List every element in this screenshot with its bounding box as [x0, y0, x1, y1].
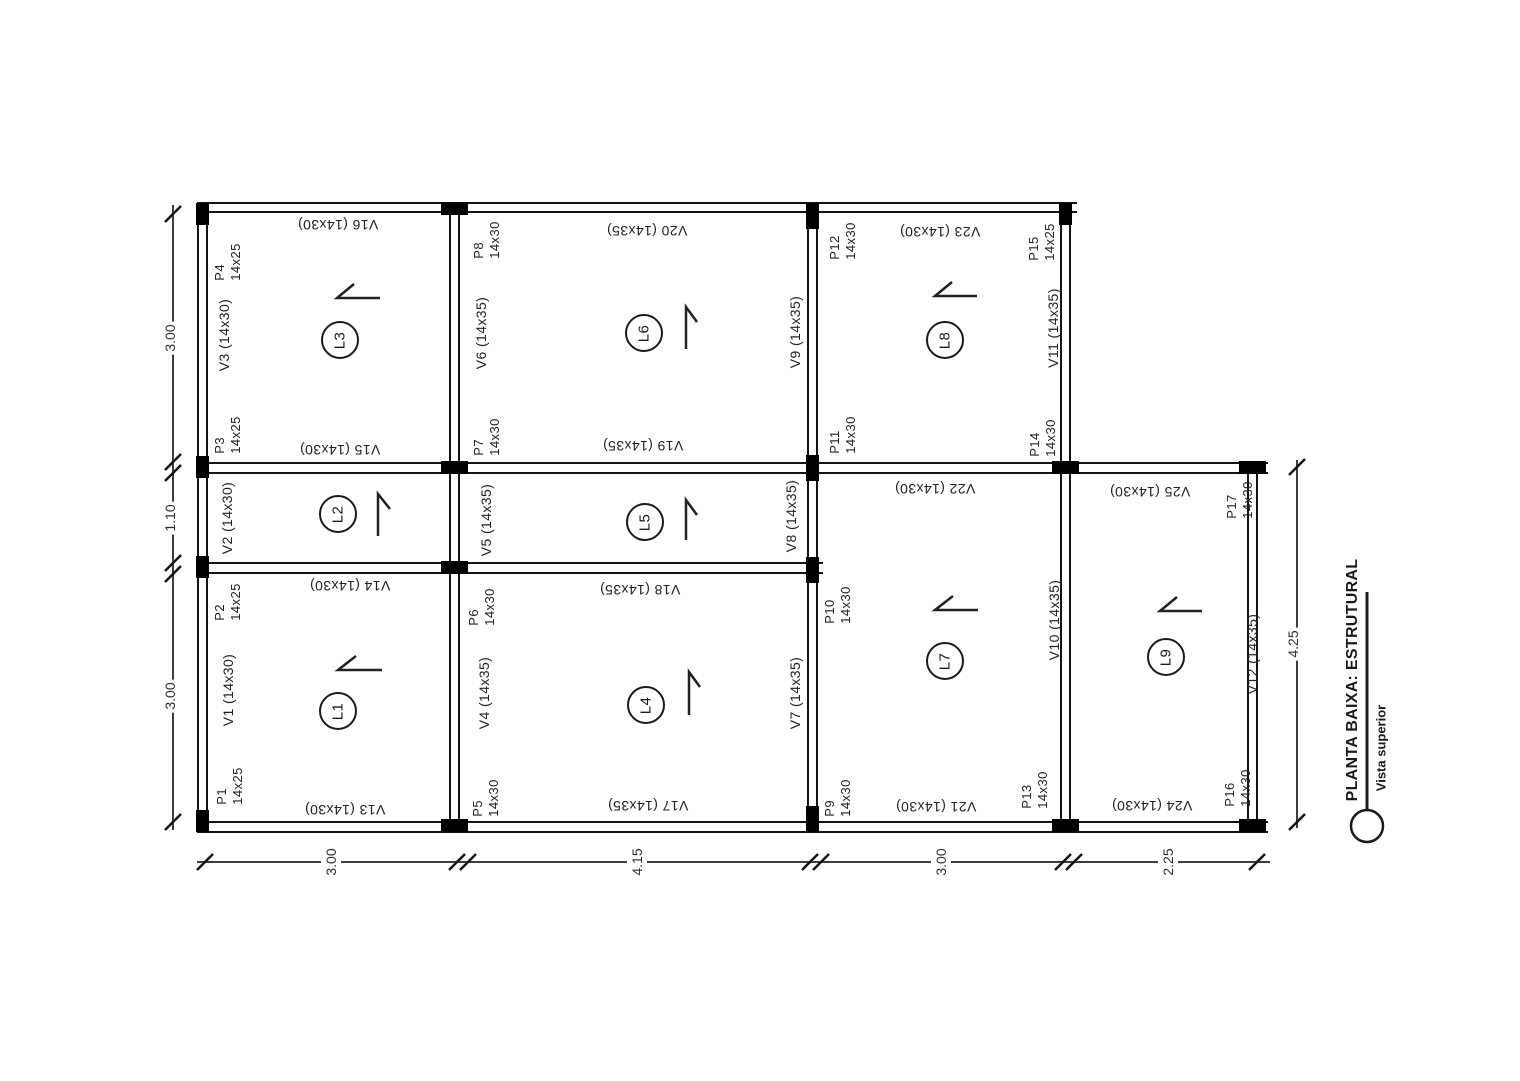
beam-label-v1: V1 (14x30) — [220, 654, 236, 726]
column-label-p2: P214x25 — [212, 583, 245, 620]
beam-label-v13: V13 (14x30) — [305, 802, 386, 818]
beam-label-v11: V11 (14x35) — [1045, 288, 1061, 368]
beam-label-v24: V24 (14x30) — [1112, 798, 1193, 814]
column-p16-rect — [1239, 819, 1266, 832]
beam-label-v9: V9 (14x35) — [787, 296, 803, 368]
column-label-p12: P1214x30 — [827, 222, 860, 259]
beam-label-v4: V4 (14x35) — [476, 657, 492, 729]
column-label-p15: P1514x25 — [1026, 223, 1059, 260]
dim-bottom-3: 3.00 — [931, 845, 951, 878]
beam-label-v20: V20 (14x35) — [607, 223, 688, 239]
dim-right-1: 4.25 — [1283, 627, 1303, 660]
slab-label-l6: L6 — [625, 314, 663, 352]
beam-label-v19: V19 (14x35) — [603, 438, 684, 454]
slab-label-l2: L2 — [319, 495, 357, 533]
slab-label-l8: L8 — [926, 321, 964, 359]
beam-label-v6: V6 (14x35) — [473, 297, 489, 369]
beam-label-v25: V25 (14x30) — [1110, 484, 1191, 500]
structural-floor-plan: V1 (14x30) V2 (14x30) V3 (14x30) V4 (14x… — [0, 0, 1520, 1081]
column-p2-rect — [196, 556, 209, 578]
beam-label-v16: V16 (14x30) — [298, 217, 379, 233]
column-p11-rect — [806, 455, 819, 481]
arrow-l1 — [338, 656, 382, 670]
column-p7-rect — [441, 461, 468, 474]
arrow-l4 — [689, 672, 700, 715]
view-title-circle-icon — [1351, 810, 1383, 842]
slab-label-l9: L9 — [1147, 638, 1185, 676]
column-p5-rect — [441, 819, 468, 832]
column-p10-rect — [806, 557, 819, 583]
column-p8-rect — [441, 202, 468, 215]
column-label-p4: P414x25 — [212, 243, 245, 280]
dim-left-2: 1.10 — [160, 501, 180, 534]
beam-label-v22: V22 (14x30) — [895, 481, 976, 497]
view-subtitle: Vista superior — [1374, 705, 1389, 791]
arrow-l9 — [1160, 597, 1202, 611]
column-label-p16: P1614x30 — [1222, 769, 1255, 806]
view-title: PLANTA BAIXA: ESTRUTURAL — [1344, 559, 1362, 802]
beam-label-v15: V15 (14x30) — [300, 442, 381, 458]
column-label-p13: P1314x30 — [1019, 771, 1052, 808]
dim-left-3: 3.00 — [160, 679, 180, 712]
column-p15-rect — [1059, 203, 1072, 225]
column-p3-rect — [196, 456, 209, 478]
column-p1-rect — [196, 810, 209, 832]
beam-label-v23: V23 (14x30) — [900, 224, 981, 240]
dim-bottom-1: 3.00 — [321, 845, 341, 878]
beam-label-v10: V10 (14x35) — [1046, 580, 1062, 661]
dim-bottom-2: 4.15 — [627, 845, 647, 878]
beam-label-v7: V7 (14x35) — [787, 657, 803, 729]
arrow-l3 — [337, 284, 380, 298]
column-label-p9: P914x30 — [822, 779, 855, 816]
arrow-l7 — [935, 596, 978, 610]
beam-label-v17: V17 (14x35) — [608, 798, 689, 814]
column-label-p5: P514x30 — [470, 779, 503, 816]
beam-label-v8: V8 (14x35) — [783, 480, 799, 552]
dimension-lines — [173, 205, 1297, 862]
slab-label-l1: L1 — [319, 692, 357, 730]
column-label-p17: P1714x30 — [1224, 481, 1257, 518]
column-label-p3: P314x25 — [212, 416, 245, 453]
column-label-p10: P1014x30 — [822, 586, 855, 623]
beam-label-v12: V12 (14x35) — [1244, 614, 1260, 695]
dim-left-1: 3.00 — [160, 321, 180, 354]
slab-label-l7: L7 — [926, 642, 964, 680]
column-label-p11: P1114x30 — [827, 416, 860, 453]
column-label-p14: P1414x30 — [1027, 419, 1060, 456]
column-p14-rect — [1052, 461, 1079, 474]
column-p17-rect — [1239, 461, 1266, 474]
arrow-l5 — [686, 500, 697, 540]
arrow-l8 — [935, 282, 977, 296]
slab-label-l3: L3 — [321, 321, 359, 359]
dim-bottom-4: 2.25 — [1158, 845, 1178, 878]
column-p13-rect — [1052, 819, 1079, 832]
column-label-p8: P814x30 — [471, 221, 504, 258]
beam-label-v18: V18 (14x35) — [600, 582, 681, 598]
column-p4-rect — [196, 203, 209, 225]
span-arrows — [337, 282, 1202, 715]
beam-label-v5: V5 (14x35) — [478, 484, 494, 556]
column-label-p1: P114x25 — [214, 767, 247, 804]
slab-label-l4: L4 — [627, 686, 665, 724]
beam-label-v3: V3 (14x30) — [216, 299, 232, 371]
column-p12-rect — [806, 203, 819, 229]
column-p9-rect — [806, 806, 819, 832]
slab-label-l5: L5 — [626, 503, 664, 541]
arrow-l2 — [378, 494, 390, 536]
column-p6-rect — [441, 561, 468, 574]
column-label-p7: P714x30 — [471, 418, 504, 455]
beam-label-v2: V2 (14x30) — [219, 482, 235, 554]
beam-label-v14: V14 (14x30) — [310, 578, 391, 594]
column-label-p6: P614x30 — [466, 588, 499, 625]
dimension-ticks — [165, 206, 1305, 870]
arrow-l6 — [686, 307, 697, 349]
beam-label-v21: V21 (14x30) — [896, 799, 977, 815]
